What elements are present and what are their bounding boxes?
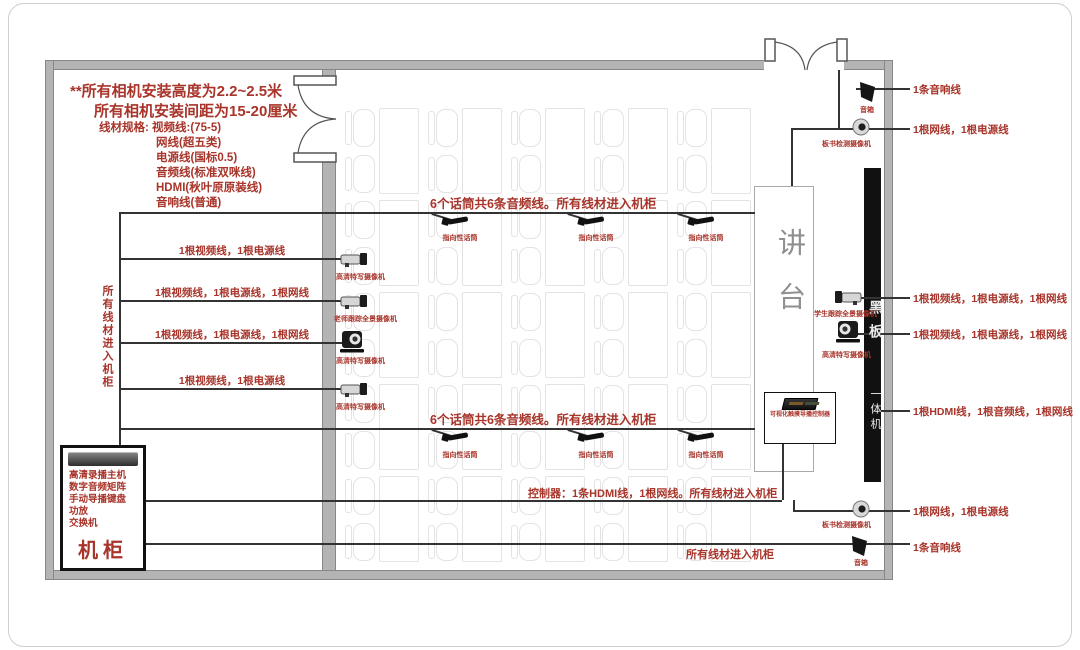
double-door-icon (758, 36, 854, 74)
touch-panel-icon (782, 398, 819, 410)
camera-line-1 (119, 258, 345, 260)
camera-label: 高清特写摄像机 (336, 402, 385, 412)
dome-top-connector (791, 128, 793, 186)
recorder-device-icon (68, 452, 138, 466)
cabinet-item: 交换机 (63, 518, 143, 530)
panel-connector-line (782, 442, 784, 500)
camera-label: 板书检测摄像机 (822, 520, 871, 530)
controller-note: 控制器：1条HDMI线，1根网线。所有线材进入机柜 (528, 485, 777, 501)
mic-bus-line-1 (119, 212, 755, 214)
spec-item: 视频线:(75-5) (152, 122, 221, 134)
partition-door-icon (290, 72, 340, 166)
cabinet-title: 机柜 (63, 534, 143, 563)
student-desk (511, 108, 587, 194)
ptz-camera-icon (834, 318, 862, 344)
mic-label: 指向性话筒 (434, 233, 486, 243)
cable-annotation: 1条音响线 (913, 540, 961, 555)
spec-item: HDMI(秋叶原原装线) (156, 181, 262, 196)
student-desk (677, 108, 753, 194)
camera-label: 高清特写摄像机 (336, 272, 385, 282)
note-camera-height: **所有相机安装高度为2.2~2.5米 (70, 80, 282, 101)
cable-annotation: 1根视频线，1根电源线，1根网线 (913, 291, 1067, 306)
cabinet-item: 高清录播主机 (63, 470, 143, 482)
cable-annotation: 1根HDMI线，1根音频线，1根网线 (913, 404, 1073, 419)
cabinet-item: 功放 (63, 506, 143, 518)
spec-item: 电源线(国标0.5) (156, 151, 262, 166)
trunk-note-vertical: 所有线材进入机柜 (99, 285, 115, 389)
equipment-cabinet: 高清录播主机 数字音频矩阵 手动导播键盘 功放 交换机 机柜 (60, 445, 146, 571)
mic-label: 指向性话筒 (570, 233, 622, 243)
camera-label: 高清特写摄像机 (336, 356, 385, 366)
cable-annotation: 1条音响线 (913, 82, 961, 97)
speaker-top-connector (838, 70, 840, 128)
student-desk (428, 292, 504, 378)
spec-item: 网线(超五类) (156, 136, 262, 151)
mic-label: 指向性话筒 (434, 450, 486, 460)
wall-left (45, 60, 54, 580)
blackboard-label-top: 黑板 (866, 300, 886, 348)
dome-bottom-connector (793, 500, 795, 510)
spec-row-first: 线材规格: 视频线:(75-5) (99, 121, 262, 136)
camera-label: 学生跟踪全景摄像机 (814, 309, 877, 319)
student-desk (428, 108, 504, 194)
spec-label: 线材规格: (99, 122, 149, 134)
cable-annotation: 1根视频线，1根电源线，1根网线 (913, 327, 1067, 342)
speaker-label: 音箱 (854, 558, 868, 568)
cabinet-item: 数字音频矩阵 (63, 482, 143, 494)
cable-annotation: 1根网线，1根电源线 (913, 504, 1009, 519)
camera-label: 老师跟踪全景摄像机 (334, 314, 397, 324)
student-desk (428, 476, 504, 562)
bottom-note: 所有线材进入机柜 (686, 546, 774, 562)
cable-annotation: 1根视频线，1根电源线 (119, 373, 345, 388)
student-desk (345, 476, 421, 562)
cable-annotation: 1根视频线，1根电源线，1根网线 (119, 327, 345, 342)
camera-label: 板书检测摄像机 (822, 139, 871, 149)
camera-line-3 (119, 342, 347, 344)
student-desk (345, 108, 421, 194)
cable-annotation: 1根视频线，1根电源线，1根网线 (119, 285, 345, 300)
cabinet-item: 手动导播键盘 (63, 494, 143, 506)
mic-bus-line-2 (119, 428, 755, 430)
cam-student-line (855, 297, 910, 299)
mic-label: 指向性话筒 (570, 450, 622, 460)
podium-label: 讲台 (770, 228, 810, 336)
speaker-icon (848, 534, 870, 558)
spec-item: 音响线(普通) (156, 196, 262, 211)
student-desk (594, 292, 670, 378)
dome-camera-icon (850, 500, 872, 518)
speaker-label: 音箱 (860, 105, 874, 115)
control-panel-box: 可视化触摸导播控制器 (764, 392, 836, 444)
camera-line-4 (119, 388, 345, 390)
dome-camera-icon (850, 118, 872, 136)
cable-annotation: 1根视频线，1根电源线 (119, 243, 345, 258)
partition-wall-lower (322, 156, 336, 571)
mic-bus-note-1: 6个话筒共6条音频线。所有线材进入机柜 (430, 193, 656, 212)
blackboard-label-bottom: 一体机 (867, 388, 883, 433)
mic-label: 指向性话筒 (680, 450, 732, 460)
student-desk (594, 108, 670, 194)
camera-label: 高清特写摄像机 (822, 350, 871, 360)
wall-bottom (45, 570, 893, 580)
speaker-icon (856, 80, 878, 104)
note-camera-spacing: 所有相机安装间距为15-20厘米 (94, 100, 297, 121)
student-desk (677, 292, 753, 378)
cable-spec-list: 线材规格: 视频线:(75-5) 网线(超五类) 电源线(国标0.5) 音频线(… (99, 121, 262, 211)
control-panel-label: 可视化触摸导播控制器 (765, 412, 835, 419)
spec-item: 音频线(标准双咪线) (156, 166, 262, 181)
student-desk (511, 292, 587, 378)
mic-bus-note-2: 6个话筒共6条音频线。所有线材进入机柜 (430, 409, 656, 428)
bullet-camera-icon (832, 288, 862, 306)
classroom-wiring-diagram: **所有相机安装高度为2.2~2.5米 所有相机安装间距为15-20厘米 线材规… (0, 0, 1080, 650)
mic-label: 指向性话筒 (680, 233, 732, 243)
cable-annotation: 1根网线，1根电源线 (913, 122, 1009, 137)
bottom-bus-line (145, 543, 910, 545)
camera-line-2 (119, 300, 345, 302)
